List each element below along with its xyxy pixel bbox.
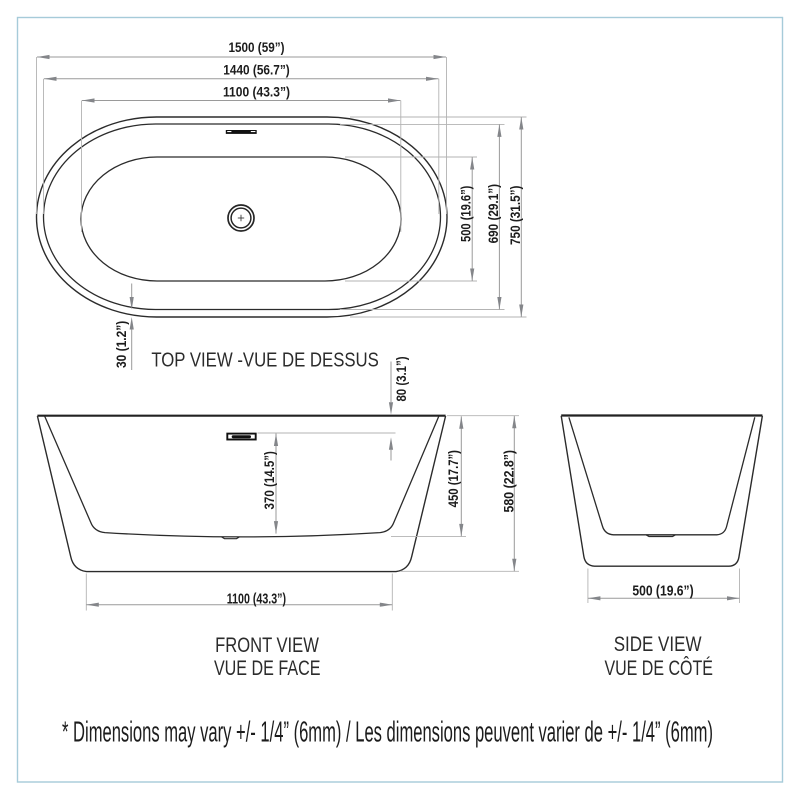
svg-text:FRONT VIEW: FRONT VIEW bbox=[215, 634, 319, 657]
svg-text:500 (19.6”): 500 (19.6”) bbox=[459, 186, 474, 242]
svg-text:VUE DE FACE: VUE DE FACE bbox=[214, 657, 321, 680]
svg-text:450 (17.7”): 450 (17.7”) bbox=[446, 450, 461, 507]
svg-text:1500 (59”): 1500 (59”) bbox=[229, 40, 285, 55]
svg-text:1100 (43.3”): 1100 (43.3”) bbox=[227, 591, 286, 607]
svg-text:500 (19.6”): 500 (19.6”) bbox=[632, 583, 693, 599]
svg-text:80 (3.1”): 80 (3.1”) bbox=[394, 356, 409, 401]
svg-text:30 (1.2”): 30 (1.2”) bbox=[114, 321, 129, 368]
svg-text:1100 (43.3”): 1100 (43.3”) bbox=[223, 84, 290, 99]
svg-text:* Dimensions may vary +/- 1/4”: * Dimensions may vary +/- 1/4” (6mm) / L… bbox=[62, 716, 713, 748]
svg-text:SIDE VIEW: SIDE VIEW bbox=[614, 633, 702, 656]
svg-text:TOP VIEW -VUE DE DESSUS: TOP VIEW -VUE DE DESSUS bbox=[151, 349, 379, 371]
svg-text:750 (31.5”): 750 (31.5”) bbox=[508, 186, 523, 245]
svg-text:370 (14.5”): 370 (14.5”) bbox=[262, 451, 277, 509]
svg-text:690 (29.1”): 690 (29.1”) bbox=[486, 184, 501, 243]
svg-text:1440 (56.7”): 1440 (56.7”) bbox=[223, 62, 289, 77]
svg-text:VUE DE CÔTÉ: VUE DE CÔTÉ bbox=[604, 657, 713, 680]
svg-text:580 (22.8”): 580 (22.8”) bbox=[502, 450, 517, 513]
